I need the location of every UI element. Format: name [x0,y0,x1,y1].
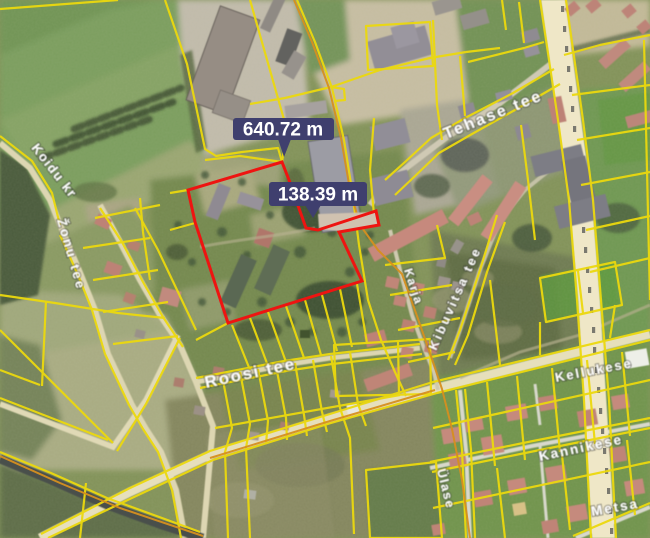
svg-text:138.39 m: 138.39 m [278,185,358,206]
svg-text:640.72 m: 640.72 m [243,120,323,141]
